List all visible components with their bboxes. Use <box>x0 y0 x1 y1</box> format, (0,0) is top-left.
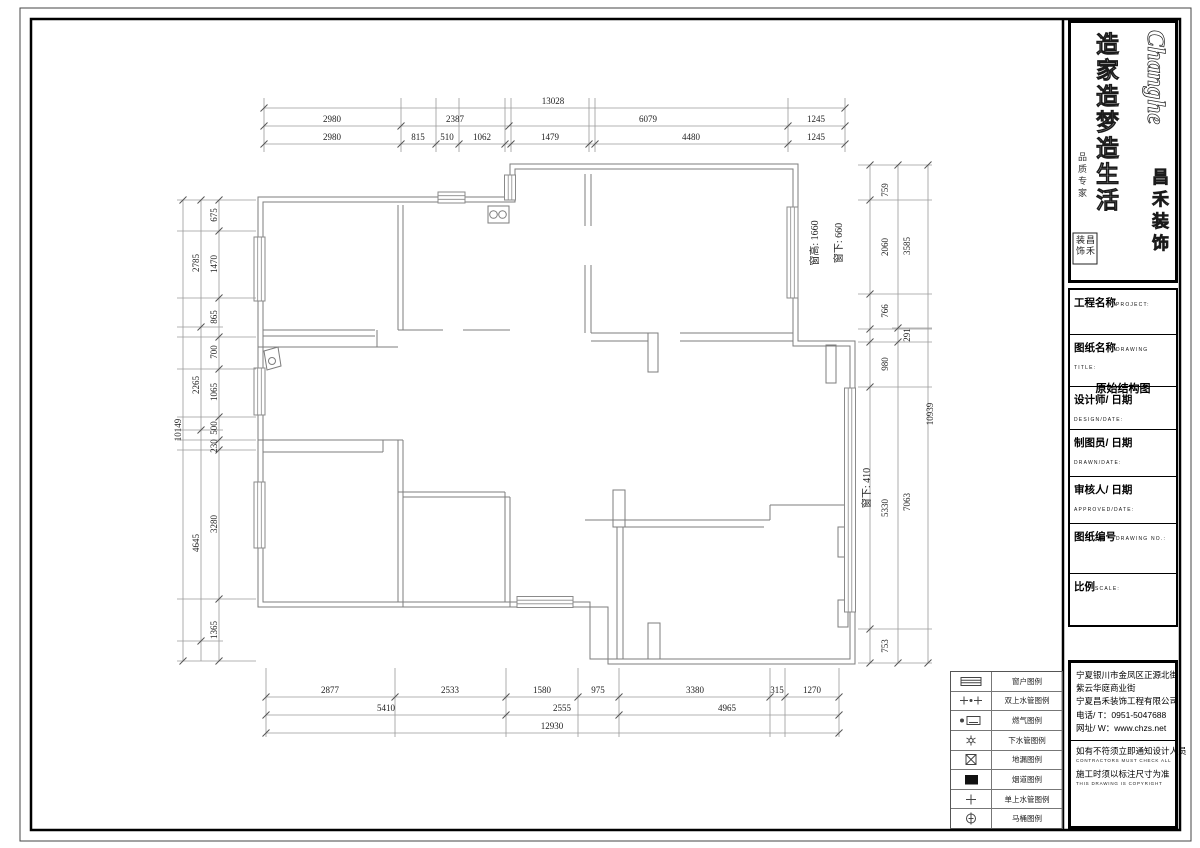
dimension-label: 12930 <box>541 721 564 731</box>
company-website: 网址/ W：www.chzs.net <box>1076 722 1170 735</box>
dimension-label: 3585 <box>902 237 912 256</box>
legend-row-gas: 燃气图例 <box>951 711 1062 731</box>
field-label-en: PROJECT: <box>1116 302 1150 308</box>
field-label-en: SCALE: <box>1095 586 1120 592</box>
legend-row-flue: 烟道图例 <box>951 770 1062 790</box>
field-label: 工程名称 <box>1074 297 1116 309</box>
note-cn: 如有不符须立即通知设计人员 <box>1076 745 1170 758</box>
dimension-label: 2980 <box>323 132 342 142</box>
legend-row-single-water-pipe: 单上水管图例 <box>951 790 1062 810</box>
legend-label: 窗户图例 <box>992 672 1062 691</box>
field-label: 图纸编号 <box>1074 531 1116 543</box>
dimension-label: 1470 <box>209 255 219 274</box>
company-name: 宁夏昌禾装饰工程有限公司 <box>1076 695 1170 708</box>
dimension-label: 6079 <box>639 114 658 124</box>
dimension-label: 975 <box>591 685 605 695</box>
dimension-label: 1062 <box>473 132 491 142</box>
dimension-label: 753 <box>880 639 890 653</box>
note-cn: 施工时须以标注尺寸为准 <box>1076 768 1170 781</box>
legend-label: 燃气图例 <box>992 711 1062 730</box>
legend-label: 马桶图例 <box>992 809 1062 828</box>
dimension-label: 5330 <box>880 499 890 518</box>
dimension-label: 766 <box>880 304 890 318</box>
gas-legend-icon <box>951 711 992 730</box>
field-label: 审核人/ 日期 <box>1074 484 1132 496</box>
field-label: 设计师/ 日期 <box>1074 394 1132 406</box>
legend-label: 双上水管图例 <box>992 692 1062 711</box>
legend-label: 单上水管图例 <box>992 790 1062 809</box>
legend-row-window: 窗户图例 <box>951 672 1062 692</box>
company-address-line2: 紫云华庭商业街 <box>1076 682 1170 695</box>
legend-row-floor-drain: 地漏图例 <box>951 751 1062 771</box>
drawing-sheet: 1302829802387607912452980815510106214794… <box>0 0 1200 848</box>
dimension-label: 10939 <box>925 402 935 425</box>
window-annotation: 窗下: 660 <box>832 223 845 263</box>
dimension-label: 2555 <box>553 703 572 713</box>
field-label: 图纸名称 <box>1074 342 1116 354</box>
company-info-box: 宁夏银川市金凤区正源北街 紫云华庭商业街 宁夏昌禾装饰工程有限公司 电话/ T：… <box>1068 660 1178 829</box>
dimension-label: 980 <box>880 357 890 371</box>
dimension-label: 2877 <box>321 685 340 695</box>
dimension-label: 759 <box>880 183 890 197</box>
legend-row-double-water-pipe: 双上水管图例 <box>951 692 1062 712</box>
note-en: THIS DRAWING IS COPYRIGHT <box>1076 781 1170 788</box>
legend-table: 窗户图例 双上水管图例 燃气图例 下水管图例 地漏图例 烟道图例 单上水管图 <box>950 671 1063 829</box>
dimension-label: 1365 <box>209 621 219 640</box>
dimension-label: 10149 <box>173 418 183 441</box>
company-phone: 电话/ T：0951-5047688 <box>1076 709 1170 722</box>
dimension-label: 4645 <box>191 534 201 553</box>
field-drafter-date: 制图员/ 日期DRAWN/DATE: <box>1070 430 1176 477</box>
window-symbols <box>254 175 856 612</box>
note-en: CONTRACTORS MUST CHECK ALL <box>1076 758 1170 765</box>
floor-drain-legend-icon <box>951 751 992 770</box>
dimension-label: 510 <box>440 132 454 142</box>
legend-label: 下水管图例 <box>992 731 1062 750</box>
window-annotation: 窗下: 410 <box>860 468 873 508</box>
dimension-label: 500 <box>209 421 219 435</box>
dimension-label: 3380 <box>686 685 705 695</box>
field-label-en: DRAWN/DATE: <box>1074 460 1122 466</box>
field-scale: 比例SCALE: <box>1070 574 1176 625</box>
dimension-lines <box>177 98 932 737</box>
field-drawing-title: 图纸名称DRAWING TITLE: 原始结构图 <box>1070 335 1176 387</box>
dimension-label: 675 <box>209 208 219 222</box>
divider <box>1071 740 1175 741</box>
dimension-label: 1479 <box>541 132 560 142</box>
field-label-en: APPROVED/DATE: <box>1074 507 1134 513</box>
field-label: 制图员/ 日期 <box>1074 437 1132 449</box>
dimension-label: 291 <box>902 328 912 342</box>
dimension-label: 865 <box>209 310 219 324</box>
dimension-label: 700 <box>209 345 219 359</box>
dimension-label: 1245 <box>807 132 826 142</box>
dimension-label: 7063 <box>902 493 912 512</box>
dimension-label: 2060 <box>880 238 890 257</box>
dimension-label: 4480 <box>682 132 701 142</box>
dimension-labels: 1302829802387607912452980815510106214794… <box>173 96 935 731</box>
company-address-line1: 宁夏银川市金凤区正源北街 <box>1076 669 1170 682</box>
dimension-label: 1580 <box>533 685 552 695</box>
toilet-legend-icon <box>951 809 992 828</box>
dimension-label: 1065 <box>209 383 219 402</box>
single-water-pipe-legend-icon <box>951 790 992 809</box>
dimension-label: 2980 <box>323 114 342 124</box>
field-label: 比例 <box>1074 581 1095 593</box>
down-water-pipe-legend-icon <box>951 731 992 750</box>
dimension-label: 4965 <box>718 703 737 713</box>
legend-label: 烟道图例 <box>992 770 1062 789</box>
dimension-label: 815 <box>411 132 425 142</box>
flue-legend-icon <box>951 770 992 789</box>
dimension-label: 315 <box>770 685 784 695</box>
double-water-pipe-legend-icon <box>951 692 992 711</box>
dimension-label: 1245 <box>807 114 826 124</box>
dimension-label: 3280 <box>209 515 219 534</box>
window-legend-icon <box>951 672 992 691</box>
field-designer-date: 设计师/ 日期DESIGN/DATE: <box>1070 387 1176 430</box>
legend-label: 地漏图例 <box>992 751 1062 770</box>
dimension-label: 2387 <box>446 114 465 124</box>
field-project: 工程名称PROJECT: <box>1070 290 1176 335</box>
dimension-label: 230 <box>209 439 219 453</box>
field-label-en: DRAWING NO.: <box>1116 536 1166 542</box>
field-drawing-no: 图纸编号DRAWING NO.: <box>1070 524 1176 574</box>
logo-box <box>1068 20 1178 283</box>
window-annotation: 窗高: 1660 <box>808 220 821 265</box>
dimension-label: 13028 <box>542 96 565 106</box>
dimension-label: 5410 <box>377 703 396 713</box>
dimension-label: 1270 <box>803 685 822 695</box>
dimension-label: 2785 <box>191 254 201 273</box>
dimension-label: 2533 <box>441 685 460 695</box>
legend-row-down-water-pipe: 下水管图例 <box>951 731 1062 751</box>
gas-meter-icon <box>264 347 281 370</box>
legend-row-toilet: 马桶图例 <box>951 809 1062 828</box>
walls <box>258 164 855 664</box>
dimension-label: 2265 <box>191 376 201 395</box>
field-approver-date: 审核人/ 日期APPROVED/DATE: <box>1070 477 1176 524</box>
title-block: 工程名称PROJECT: 图纸名称DRAWING TITLE: 原始结构图 设计… <box>1068 288 1178 627</box>
field-label-en: DESIGN/DATE: <box>1074 417 1123 423</box>
